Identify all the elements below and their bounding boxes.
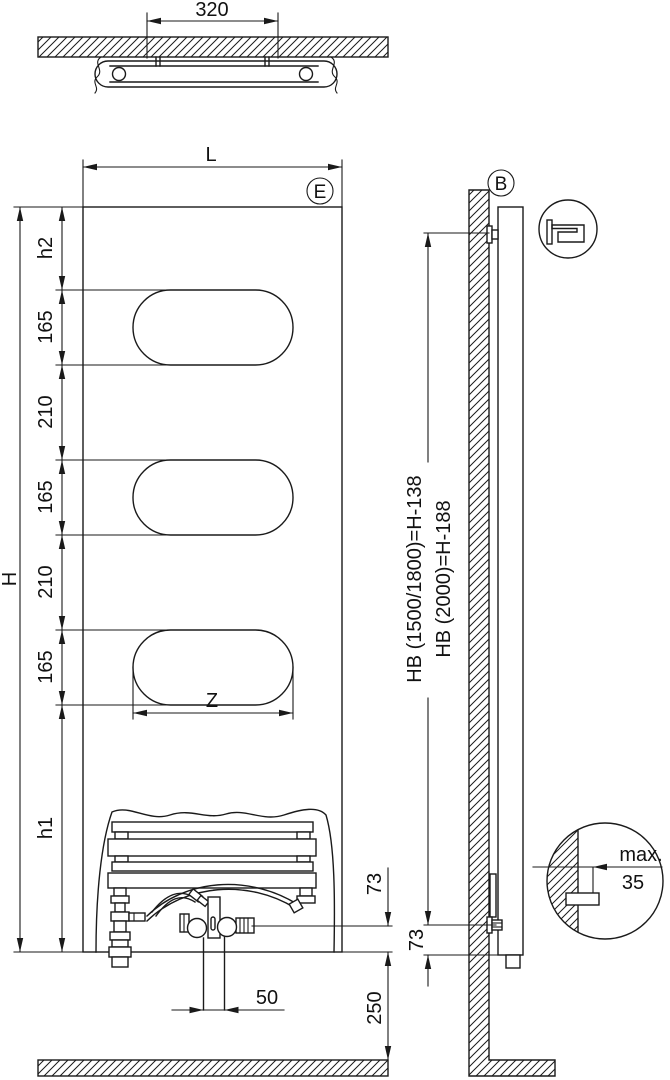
dim-73-side-label: 73 (406, 929, 428, 951)
floor-section-front (38, 1060, 388, 1076)
oval-cutout-1 (133, 290, 293, 365)
detail-circle-max-offset: max. 35 (533, 820, 663, 942)
dim-H-label: H (0, 572, 21, 586)
bracket-foot-detail (566, 893, 599, 905)
dim-165-label-2: 165 (35, 480, 57, 513)
wall-section-top (38, 37, 388, 57)
top-bracket (487, 226, 498, 243)
dim-hb1-label: HB (1500/1800)=H-138 (404, 475, 426, 682)
dim-width-L: L (83, 144, 342, 207)
dim-Z-label: Z (206, 690, 218, 712)
radiator-installation-drawing: 320 L E (0, 0, 670, 1080)
dim-165-label-3: 165 (35, 650, 57, 683)
detail-circle-bracket (539, 200, 597, 258)
detail-marker-e-label: E (314, 182, 327, 203)
detail-marker-b-label: B (495, 174, 508, 195)
front-view: L E H h2 165 210 165 (0, 144, 392, 1076)
dim-pipe-spacing: 50 (172, 987, 284, 1013)
technical-drawing-canvas: 320 L E (0, 0, 670, 1080)
dim-250-label: 250 (364, 991, 386, 1024)
dim-hb2-label: HB (2000)=H-188 (433, 500, 455, 657)
bottom-valve-stub (506, 955, 520, 968)
valve-knob-right (218, 918, 237, 937)
dim-h1-label: h1 (35, 817, 57, 839)
dim-165-label-1: 165 (35, 310, 57, 343)
dim-320-label: 320 (195, 0, 228, 21)
dim-50-label: 50 (256, 987, 278, 1009)
dim-210-label-1: 210 (35, 395, 57, 428)
max-label: max. (619, 844, 662, 866)
oval-cutout-2 (133, 460, 293, 535)
max-value-label: 35 (622, 872, 644, 894)
dim-h2-label: h2 (35, 237, 57, 259)
top-mount-detail: 320 (38, 0, 388, 93)
side-view: B HB (1500/1800)=H-138 HB (2000)=H-188 7… (404, 170, 663, 1076)
dim-chain-vertical: h2 165 210 165 210 165 h1 (35, 207, 65, 952)
dim-210-label-2: 210 (35, 565, 57, 598)
dim-73-front-label: 73 (364, 873, 386, 895)
right-connection (297, 888, 315, 903)
valve-knob-left (188, 919, 207, 938)
bracket-plate-icon (547, 220, 552, 244)
radiator-panel-side (498, 207, 523, 955)
dim-floor-clearance: 250 (364, 952, 391, 1060)
radiator-top-section (95, 61, 337, 87)
dim-L-label: L (205, 144, 216, 166)
